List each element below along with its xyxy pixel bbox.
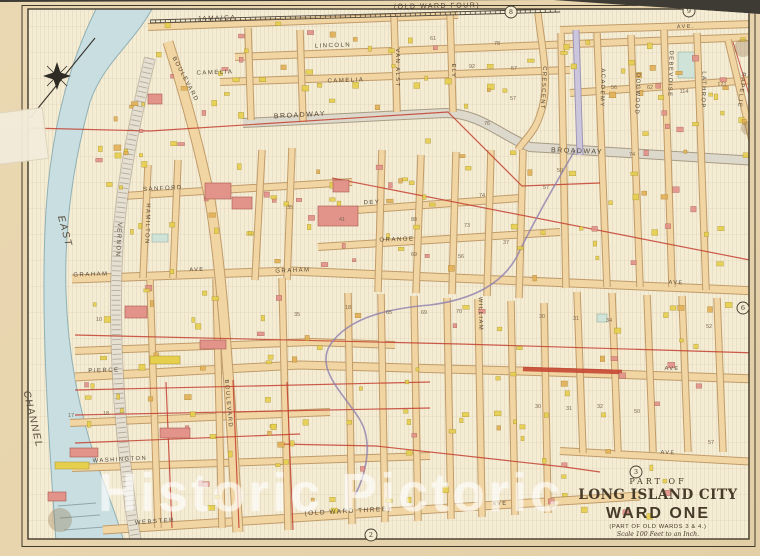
building bbox=[249, 231, 252, 234]
building bbox=[592, 226, 598, 231]
building bbox=[100, 356, 107, 360]
block-number: 62 bbox=[647, 85, 653, 91]
building bbox=[306, 70, 313, 75]
block-number: 57 bbox=[708, 440, 714, 446]
building bbox=[408, 38, 412, 43]
map-photo: JAMAICAAVE.LINCOLNCAMELIACAMELIABROADWAY… bbox=[0, 0, 760, 556]
building bbox=[276, 22, 281, 26]
building bbox=[662, 111, 667, 116]
title-ward: WARD ONE bbox=[568, 504, 748, 524]
building bbox=[317, 170, 320, 174]
building bbox=[117, 394, 120, 399]
building bbox=[600, 356, 605, 362]
pond bbox=[152, 234, 168, 242]
building bbox=[342, 243, 345, 248]
building bbox=[156, 52, 161, 57]
title-scale: Scale 100 Feet to an Inch. bbox=[568, 531, 748, 539]
street-label: CAMELIA bbox=[196, 69, 233, 76]
building bbox=[268, 431, 272, 435]
street-label: ELY bbox=[450, 63, 456, 78]
building bbox=[233, 78, 240, 82]
street bbox=[300, 30, 303, 122]
building bbox=[433, 46, 437, 50]
building bbox=[257, 332, 264, 336]
building bbox=[264, 192, 270, 197]
building bbox=[202, 291, 207, 295]
block-number: 65 bbox=[386, 310, 392, 316]
building bbox=[463, 305, 470, 309]
title-city: LONG ISLAND CITY bbox=[568, 487, 748, 504]
building bbox=[596, 256, 599, 260]
building bbox=[561, 51, 568, 54]
building bbox=[119, 186, 123, 190]
map-title-cartouche: PART OF LONG ISLAND CITY WARD ONE (PART … bbox=[568, 477, 748, 539]
building bbox=[404, 410, 409, 414]
building bbox=[460, 418, 464, 423]
building bbox=[389, 49, 395, 53]
building bbox=[414, 225, 420, 229]
building bbox=[562, 493, 567, 496]
building bbox=[307, 31, 314, 35]
building bbox=[460, 155, 465, 158]
building bbox=[389, 183, 393, 188]
building bbox=[655, 402, 660, 406]
building bbox=[130, 229, 133, 234]
atlas-map: JAMAICAAVE.LINCOLNCAMELIACAMELIABROADWAY… bbox=[0, 0, 760, 556]
block-number: 57 bbox=[543, 185, 549, 191]
building bbox=[544, 413, 548, 418]
plate-number: 9 bbox=[687, 7, 691, 15]
building bbox=[353, 37, 357, 41]
plate-number: 6 bbox=[741, 304, 745, 312]
building bbox=[533, 275, 537, 281]
plate-number: 8 bbox=[509, 8, 513, 16]
building bbox=[139, 223, 142, 229]
building bbox=[464, 104, 467, 108]
building bbox=[720, 78, 727, 82]
building bbox=[228, 451, 232, 457]
building bbox=[278, 442, 285, 447]
building bbox=[721, 111, 725, 115]
red-overprint-line bbox=[523, 369, 622, 372]
building bbox=[642, 191, 647, 195]
building bbox=[743, 153, 749, 158]
block-number: 69 bbox=[411, 252, 417, 258]
block-number: 35 bbox=[294, 312, 300, 318]
building bbox=[609, 92, 615, 98]
atlas-paper: JAMAICAAVE.LINCOLNCAMELIACAMELIABROADWAY… bbox=[0, 0, 760, 556]
building bbox=[170, 222, 175, 227]
building bbox=[165, 23, 170, 28]
large-building bbox=[232, 197, 252, 209]
large-building bbox=[55, 462, 89, 469]
building bbox=[276, 464, 281, 467]
building bbox=[360, 466, 364, 471]
building bbox=[139, 364, 145, 370]
building bbox=[307, 224, 311, 229]
building bbox=[520, 425, 525, 429]
paper-stain bbox=[741, 121, 755, 135]
block-number: 114 bbox=[680, 89, 689, 95]
building bbox=[692, 55, 698, 61]
building bbox=[696, 384, 702, 388]
building bbox=[203, 482, 209, 487]
street-label: AVE bbox=[664, 366, 679, 372]
building bbox=[541, 231, 545, 235]
building bbox=[106, 182, 112, 186]
building bbox=[629, 60, 635, 65]
building bbox=[352, 259, 356, 262]
building bbox=[215, 495, 220, 498]
building bbox=[93, 303, 96, 306]
building bbox=[462, 413, 469, 417]
building bbox=[302, 86, 309, 91]
street-label: PIERCE bbox=[88, 367, 120, 374]
building bbox=[321, 262, 327, 266]
block-number: 18 bbox=[103, 411, 109, 417]
block-number: 50 bbox=[634, 409, 640, 415]
building bbox=[643, 132, 649, 136]
building bbox=[661, 195, 668, 200]
building bbox=[656, 84, 661, 88]
building bbox=[96, 158, 103, 162]
building bbox=[658, 95, 664, 99]
block-number: 30 bbox=[535, 404, 541, 410]
plate-number: 2 bbox=[369, 531, 373, 539]
street-label: JAMAICA bbox=[198, 14, 237, 22]
large-building bbox=[205, 183, 231, 199]
building bbox=[386, 199, 393, 203]
street-label: LINCOLN bbox=[315, 42, 352, 49]
building bbox=[195, 324, 201, 330]
building bbox=[631, 261, 636, 265]
building bbox=[497, 327, 502, 331]
building bbox=[562, 463, 568, 467]
building bbox=[192, 318, 195, 323]
building bbox=[664, 313, 669, 318]
block-number: 31 bbox=[566, 406, 572, 412]
block-number: 74 bbox=[629, 152, 635, 158]
building bbox=[528, 59, 535, 62]
building bbox=[445, 78, 452, 84]
building bbox=[601, 413, 605, 417]
title-subtitle: (PART OF OLD WARDS 3 & 4.) bbox=[568, 524, 748, 531]
building bbox=[355, 313, 361, 318]
block-number: 18 bbox=[345, 305, 351, 311]
block-number: 70 bbox=[456, 309, 462, 315]
building bbox=[268, 355, 273, 359]
building bbox=[85, 396, 91, 400]
building bbox=[130, 105, 134, 108]
building bbox=[144, 289, 150, 292]
building bbox=[517, 347, 523, 350]
street-label: AVE bbox=[492, 501, 507, 508]
block-number: 56 bbox=[611, 85, 617, 91]
building bbox=[542, 458, 546, 463]
building bbox=[423, 195, 426, 200]
building bbox=[562, 475, 567, 479]
building bbox=[579, 227, 583, 230]
building bbox=[266, 361, 271, 364]
building bbox=[330, 32, 336, 37]
building bbox=[202, 110, 206, 115]
building bbox=[244, 49, 248, 53]
building bbox=[114, 117, 117, 122]
building bbox=[718, 226, 724, 230]
large-building bbox=[70, 448, 98, 457]
building bbox=[593, 241, 597, 246]
block-number: 73 bbox=[464, 223, 470, 229]
building bbox=[308, 215, 314, 220]
building bbox=[406, 451, 412, 456]
block-number: 10 bbox=[96, 317, 102, 323]
building bbox=[317, 83, 322, 87]
street-label: VAN ALST bbox=[394, 48, 400, 87]
building bbox=[385, 499, 392, 503]
building bbox=[139, 154, 142, 157]
street-label: AVE bbox=[189, 267, 204, 274]
building bbox=[565, 391, 569, 396]
building bbox=[443, 487, 449, 493]
building bbox=[569, 171, 576, 176]
building bbox=[114, 145, 121, 151]
large-building bbox=[148, 94, 162, 104]
building bbox=[518, 247, 524, 250]
building bbox=[609, 201, 613, 205]
building bbox=[511, 372, 516, 376]
building bbox=[104, 317, 111, 323]
building bbox=[466, 166, 472, 170]
street-label: AVE bbox=[668, 280, 683, 287]
building bbox=[714, 94, 718, 100]
building bbox=[347, 420, 352, 424]
street bbox=[248, 28, 251, 120]
large-building bbox=[125, 306, 147, 318]
building bbox=[259, 77, 266, 81]
building bbox=[375, 105, 380, 110]
block-number: 17 bbox=[68, 413, 74, 419]
block-number: 78 bbox=[494, 41, 500, 47]
building bbox=[271, 196, 277, 199]
building bbox=[214, 228, 218, 234]
block-number: 32 bbox=[597, 404, 603, 410]
street-label: WILLIAM bbox=[477, 297, 484, 331]
street-label: AVE bbox=[660, 450, 675, 457]
building bbox=[237, 164, 241, 170]
block-number: 76 bbox=[484, 121, 490, 127]
block-number: 121 bbox=[717, 82, 726, 88]
building bbox=[496, 377, 500, 381]
building bbox=[330, 497, 336, 501]
building bbox=[564, 44, 570, 49]
large-building bbox=[160, 428, 190, 438]
building bbox=[238, 34, 244, 38]
building bbox=[150, 301, 153, 307]
building bbox=[684, 150, 687, 153]
building bbox=[284, 460, 289, 465]
building bbox=[303, 420, 309, 426]
building bbox=[398, 247, 404, 250]
building bbox=[497, 426, 501, 431]
plate-number: 3 bbox=[634, 468, 638, 476]
building bbox=[281, 65, 286, 70]
street-label: ORANGE bbox=[379, 236, 414, 243]
building bbox=[171, 74, 174, 78]
building bbox=[376, 165, 383, 169]
block-number: 57 bbox=[510, 96, 516, 102]
building bbox=[368, 46, 371, 51]
building bbox=[449, 430, 456, 434]
building bbox=[414, 83, 420, 89]
building bbox=[652, 230, 658, 236]
building bbox=[487, 64, 493, 68]
building bbox=[399, 179, 403, 184]
building bbox=[261, 315, 265, 321]
building bbox=[665, 124, 669, 129]
building bbox=[171, 142, 177, 146]
building bbox=[271, 424, 276, 430]
building bbox=[621, 69, 625, 74]
building bbox=[141, 103, 144, 106]
building bbox=[412, 433, 417, 437]
building bbox=[185, 395, 192, 400]
building bbox=[178, 143, 185, 146]
building bbox=[678, 305, 685, 310]
building bbox=[425, 254, 429, 257]
building bbox=[633, 194, 639, 200]
building bbox=[210, 434, 216, 438]
building bbox=[586, 40, 590, 44]
building bbox=[510, 151, 516, 155]
building bbox=[647, 43, 652, 49]
block-number: 30 bbox=[539, 314, 545, 320]
building bbox=[717, 262, 724, 266]
building bbox=[87, 421, 91, 427]
building bbox=[650, 65, 656, 70]
building bbox=[265, 397, 270, 402]
building bbox=[611, 357, 618, 361]
building bbox=[694, 344, 699, 349]
block-number: 74 bbox=[479, 193, 485, 199]
building bbox=[709, 93, 713, 96]
building bbox=[190, 412, 195, 417]
building bbox=[311, 498, 314, 501]
building bbox=[631, 172, 638, 176]
building bbox=[693, 122, 699, 126]
street-label: DEY bbox=[363, 200, 380, 207]
building bbox=[292, 357, 297, 362]
building bbox=[275, 259, 281, 263]
building bbox=[120, 409, 124, 413]
building bbox=[409, 181, 414, 185]
building bbox=[170, 269, 174, 273]
building bbox=[329, 99, 335, 103]
building bbox=[317, 346, 322, 350]
building bbox=[606, 449, 611, 453]
large-building bbox=[200, 340, 226, 349]
building bbox=[426, 139, 431, 144]
block-number: 56 bbox=[458, 254, 464, 260]
building bbox=[91, 384, 94, 389]
block-number: 41 bbox=[339, 217, 345, 223]
large-building bbox=[318, 206, 358, 226]
building bbox=[503, 89, 507, 93]
block-number: 37 bbox=[503, 240, 509, 246]
building bbox=[521, 436, 524, 441]
building bbox=[209, 213, 216, 217]
building bbox=[212, 297, 219, 301]
building bbox=[290, 441, 294, 446]
building bbox=[239, 57, 243, 62]
block-number: 92 bbox=[469, 64, 475, 70]
street-label: GRAHAM bbox=[275, 267, 311, 274]
building bbox=[98, 146, 102, 152]
block-number: 59 bbox=[557, 168, 563, 174]
building bbox=[139, 129, 143, 132]
building bbox=[676, 71, 682, 75]
block-number: 88 bbox=[411, 217, 417, 223]
building bbox=[548, 499, 554, 504]
building bbox=[673, 187, 680, 193]
building bbox=[208, 505, 215, 510]
building bbox=[487, 89, 490, 92]
block-number: 69 bbox=[421, 310, 427, 316]
block-number: 52 bbox=[706, 324, 712, 330]
building bbox=[330, 198, 336, 202]
building bbox=[453, 324, 457, 328]
building bbox=[416, 368, 419, 371]
building bbox=[402, 178, 408, 181]
building bbox=[200, 366, 205, 370]
building bbox=[665, 224, 670, 229]
building bbox=[448, 265, 454, 271]
building bbox=[212, 100, 217, 106]
building bbox=[528, 170, 532, 176]
title-part-of: PART OF bbox=[568, 477, 748, 487]
building bbox=[407, 419, 411, 425]
building bbox=[276, 295, 282, 300]
building bbox=[677, 127, 683, 132]
building bbox=[704, 232, 708, 236]
building bbox=[513, 420, 516, 424]
building bbox=[670, 306, 676, 311]
building bbox=[429, 203, 435, 206]
large-building bbox=[333, 180, 349, 192]
paper-stain bbox=[48, 508, 72, 532]
block-number: 34 bbox=[606, 318, 612, 324]
building bbox=[708, 307, 713, 313]
building bbox=[725, 302, 732, 307]
building bbox=[224, 92, 229, 95]
building bbox=[405, 380, 409, 384]
building bbox=[494, 411, 501, 416]
building bbox=[561, 381, 567, 386]
building bbox=[644, 150, 649, 156]
building bbox=[680, 339, 684, 342]
building bbox=[142, 161, 147, 167]
building bbox=[614, 328, 621, 333]
street-label: CAMELIA bbox=[327, 77, 364, 84]
building bbox=[305, 335, 309, 340]
paper-repair-patch bbox=[0, 107, 49, 165]
building bbox=[296, 198, 301, 201]
building bbox=[571, 64, 577, 69]
building bbox=[238, 112, 243, 118]
block-number: 57 bbox=[511, 66, 517, 72]
building bbox=[359, 387, 362, 391]
building bbox=[619, 373, 626, 379]
block-number: 35 bbox=[287, 205, 293, 211]
